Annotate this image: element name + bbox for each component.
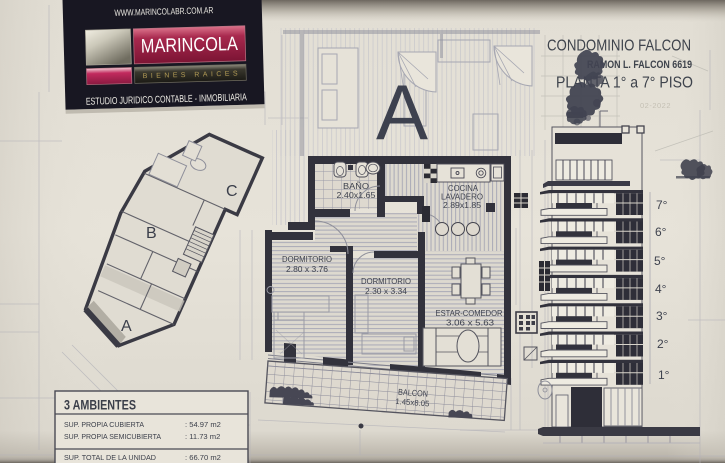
svg-text:3°: 3° <box>656 309 668 323</box>
svg-text:: 54.97 m2: : 54.97 m2 <box>185 420 221 429</box>
svg-text:: 11.73 m2: : 11.73 m2 <box>185 432 220 441</box>
svg-text:A: A <box>121 318 132 335</box>
svg-text:BAÑO: BAÑO <box>343 181 369 191</box>
svg-text:2°: 2° <box>657 337 669 351</box>
svg-text:6°: 6° <box>655 225 667 239</box>
svg-text:SUP. TOTAL DE LA UNIDAD: SUP. TOTAL DE LA UNIDAD <box>64 453 156 462</box>
svg-text:SUP. PROPIA CUBIERTA: SUP. PROPIA CUBIERTA <box>64 420 145 429</box>
svg-text:LAVADERO: LAVADERO <box>441 192 483 202</box>
svg-text:DORMITORIO: DORMITORIO <box>282 254 332 264</box>
svg-text:A: A <box>376 68 428 156</box>
svg-text:2.40x1.65: 2.40x1.65 <box>337 191 377 200</box>
svg-text:2.30 x 3.34: 2.30 x 3.34 <box>365 287 408 296</box>
svg-text:B: B <box>146 225 157 242</box>
svg-text:MARINCOLA: MARINCOLA <box>141 33 239 58</box>
svg-text:7°: 7° <box>656 198 668 212</box>
svg-text:1°: 1° <box>658 368 670 382</box>
svg-text:5°: 5° <box>654 254 666 268</box>
svg-text:4°: 4° <box>655 282 667 296</box>
svg-text:3 AMBIENTES: 3 AMBIENTES <box>64 397 136 413</box>
svg-text:2.89x1.85: 2.89x1.85 <box>443 201 482 210</box>
svg-text:SUP. PROPIA SEMICUBIERTA: SUP. PROPIA SEMICUBIERTA <box>64 432 162 441</box>
svg-text:02-2022: 02-2022 <box>640 101 671 110</box>
svg-text:3.06 x 5.63: 3.06 x 5.63 <box>446 319 495 328</box>
svg-text:2.80 x 3.76: 2.80 x 3.76 <box>286 265 329 274</box>
svg-text:C: C <box>226 183 238 200</box>
svg-text:DORMITORIO: DORMITORIO <box>361 276 411 286</box>
svg-text:CONDOMINIO FALCON: CONDOMINIO FALCON <box>547 38 691 55</box>
svg-text:ESTAR-COMEDOR: ESTAR-COMEDOR <box>436 308 503 318</box>
svg-text:: 66.70 m2: : 66.70 m2 <box>185 453 221 462</box>
